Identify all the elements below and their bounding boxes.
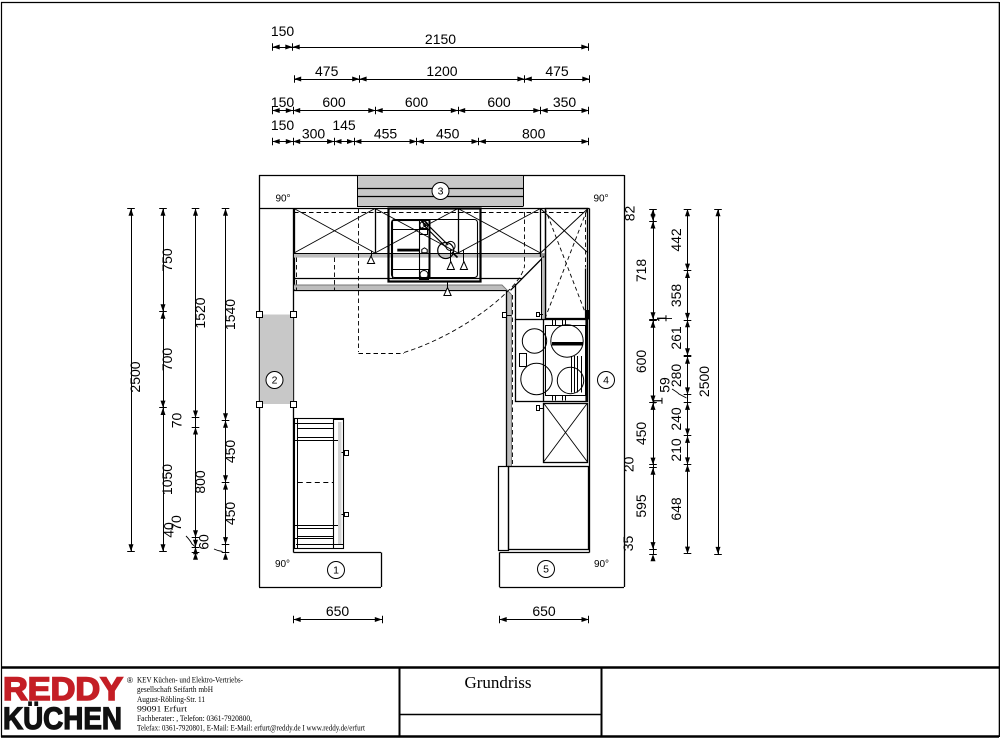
svg-text:261: 261 xyxy=(668,326,684,350)
svg-text:2: 2 xyxy=(272,375,278,387)
svg-text:442: 442 xyxy=(668,228,684,252)
svg-text:475: 475 xyxy=(545,63,569,79)
svg-text:450: 450 xyxy=(436,126,460,142)
svg-text:3: 3 xyxy=(438,186,444,198)
svg-text:800: 800 xyxy=(522,126,546,142)
svg-text:20: 20 xyxy=(621,456,637,472)
svg-text:600: 600 xyxy=(405,94,429,110)
svg-text:60: 60 xyxy=(196,534,212,550)
svg-text:KEV Küchen- und Elektro-Vertri: KEV Küchen- und Elektro-Vertriebs- xyxy=(137,676,243,685)
svg-text:800: 800 xyxy=(192,470,208,494)
svg-text:650: 650 xyxy=(532,603,556,619)
svg-text:1200: 1200 xyxy=(426,63,457,79)
svg-text:600: 600 xyxy=(633,350,649,374)
svg-text:150: 150 xyxy=(271,23,295,39)
svg-text:4: 4 xyxy=(603,375,609,387)
svg-text:450: 450 xyxy=(222,440,238,464)
svg-text:1: 1 xyxy=(650,397,666,405)
svg-text:650: 650 xyxy=(326,603,350,619)
svg-text:90°: 90° xyxy=(594,559,609,570)
svg-text:82: 82 xyxy=(622,206,638,222)
svg-text:300: 300 xyxy=(302,126,326,142)
svg-text:5: 5 xyxy=(543,564,549,576)
svg-text:REDDY: REDDY xyxy=(3,671,123,707)
svg-text:1540: 1540 xyxy=(222,299,238,330)
svg-text:90°: 90° xyxy=(275,194,290,205)
svg-text:358: 358 xyxy=(668,284,684,308)
svg-text:600: 600 xyxy=(322,94,346,110)
svg-text:Fachberater: , Telefon: 0361-7: Fachberater: , Telefon: 0361-7920800, xyxy=(137,714,252,723)
svg-text:90°: 90° xyxy=(275,559,290,570)
svg-text:Grundriss: Grundriss xyxy=(464,673,531,692)
svg-text:®: ® xyxy=(127,676,133,685)
svg-text:40: 40 xyxy=(161,522,177,538)
svg-text:1: 1 xyxy=(333,565,339,577)
svg-text:gesellschaft Seifarth mbH: gesellschaft Seifarth mbH xyxy=(137,685,213,694)
svg-text:150: 150 xyxy=(271,117,295,133)
svg-text:145: 145 xyxy=(332,117,356,133)
svg-text:350: 350 xyxy=(553,94,577,110)
svg-text:648: 648 xyxy=(668,497,684,521)
svg-text:90°: 90° xyxy=(593,194,608,205)
svg-text:455: 455 xyxy=(374,126,398,142)
svg-text:59: 59 xyxy=(657,377,673,393)
svg-text:August-Röbling-Str. 11: August-Röbling-Str. 11 xyxy=(137,695,205,704)
svg-text:450: 450 xyxy=(222,502,238,526)
svg-text:595: 595 xyxy=(633,494,649,518)
svg-text:240: 240 xyxy=(668,407,684,431)
svg-text:70: 70 xyxy=(169,413,185,429)
svg-text:450: 450 xyxy=(633,422,649,446)
svg-text:210: 210 xyxy=(668,438,684,462)
svg-text:718: 718 xyxy=(633,259,649,283)
svg-text:99091 Erfurt: 99091 Erfurt xyxy=(137,704,188,713)
svg-text:150: 150 xyxy=(271,94,295,110)
svg-text:2500: 2500 xyxy=(696,366,712,397)
svg-text:750: 750 xyxy=(159,248,175,272)
svg-text:700: 700 xyxy=(159,348,175,372)
svg-text:1520: 1520 xyxy=(192,297,208,328)
svg-text:2150: 2150 xyxy=(425,31,456,47)
svg-text:2500: 2500 xyxy=(127,361,143,392)
svg-text:Telefax: 0361-7920801, E-Mail:: Telefax: 0361-7920801, E-Mail: E-Mail: e… xyxy=(137,724,366,733)
svg-text:35: 35 xyxy=(620,536,636,552)
svg-text:600: 600 xyxy=(487,94,511,110)
svg-text:475: 475 xyxy=(315,63,339,79)
svg-text:1050: 1050 xyxy=(159,464,175,495)
